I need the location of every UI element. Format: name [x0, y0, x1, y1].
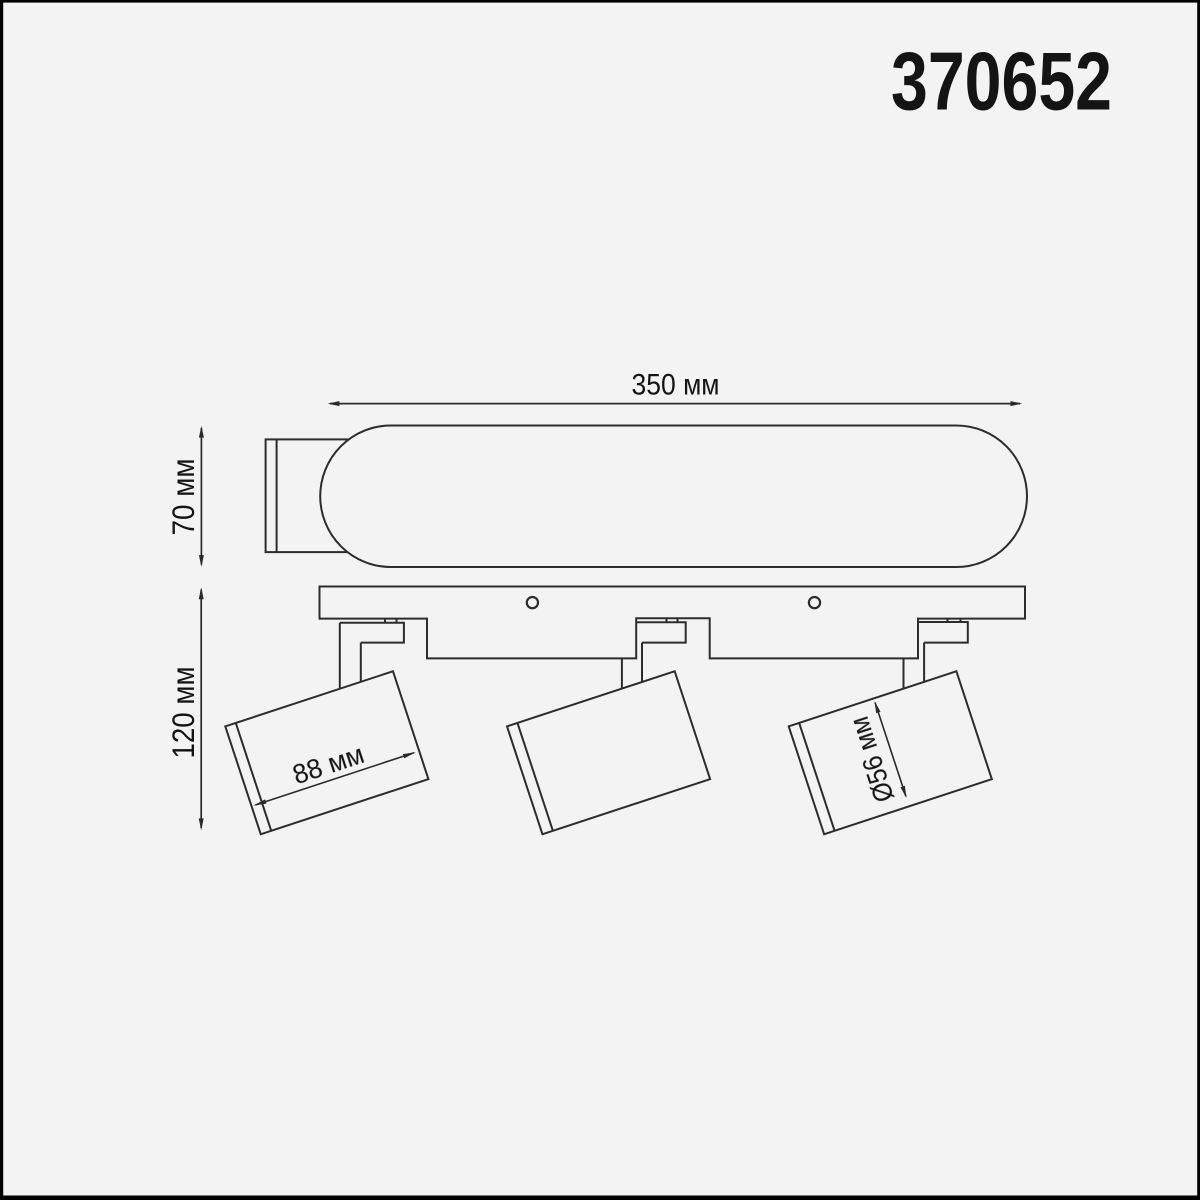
svg-text:70 мм: 70 мм	[165, 459, 201, 536]
svg-text:370652: 370652	[891, 35, 1112, 127]
svg-text:120 мм: 120 мм	[165, 667, 201, 759]
svg-text:350 мм: 350 мм	[632, 368, 720, 401]
